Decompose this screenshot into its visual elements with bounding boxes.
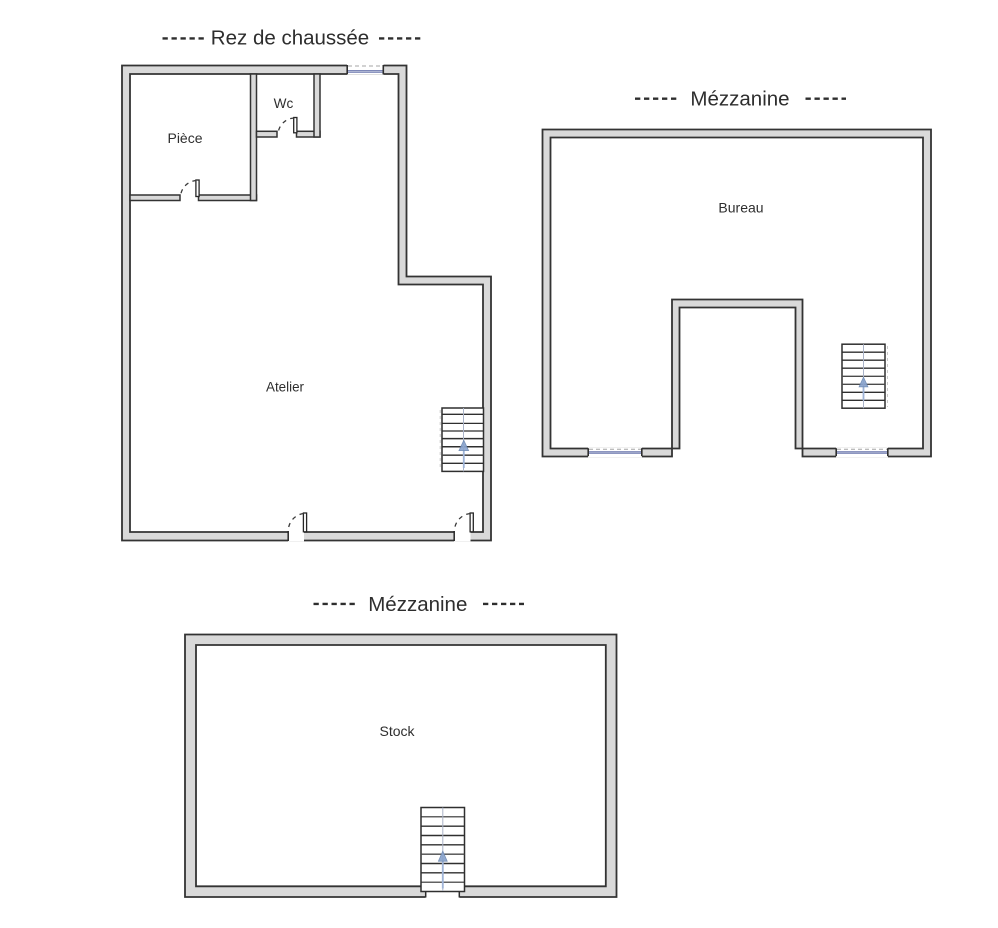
svg-text:Mézzanine: Mézzanine	[690, 88, 789, 111]
svg-text:Wc: Wc	[274, 96, 294, 111]
svg-text:Pièce: Pièce	[167, 130, 202, 146]
svg-text:Bureau: Bureau	[718, 199, 763, 215]
svg-text:Atelier: Atelier	[266, 379, 304, 394]
svg-text:Stock: Stock	[379, 723, 415, 739]
svg-text:Mézzanine: Mézzanine	[368, 593, 467, 616]
svg-text:Rez de chaussée: Rez de chaussée	[211, 26, 369, 49]
